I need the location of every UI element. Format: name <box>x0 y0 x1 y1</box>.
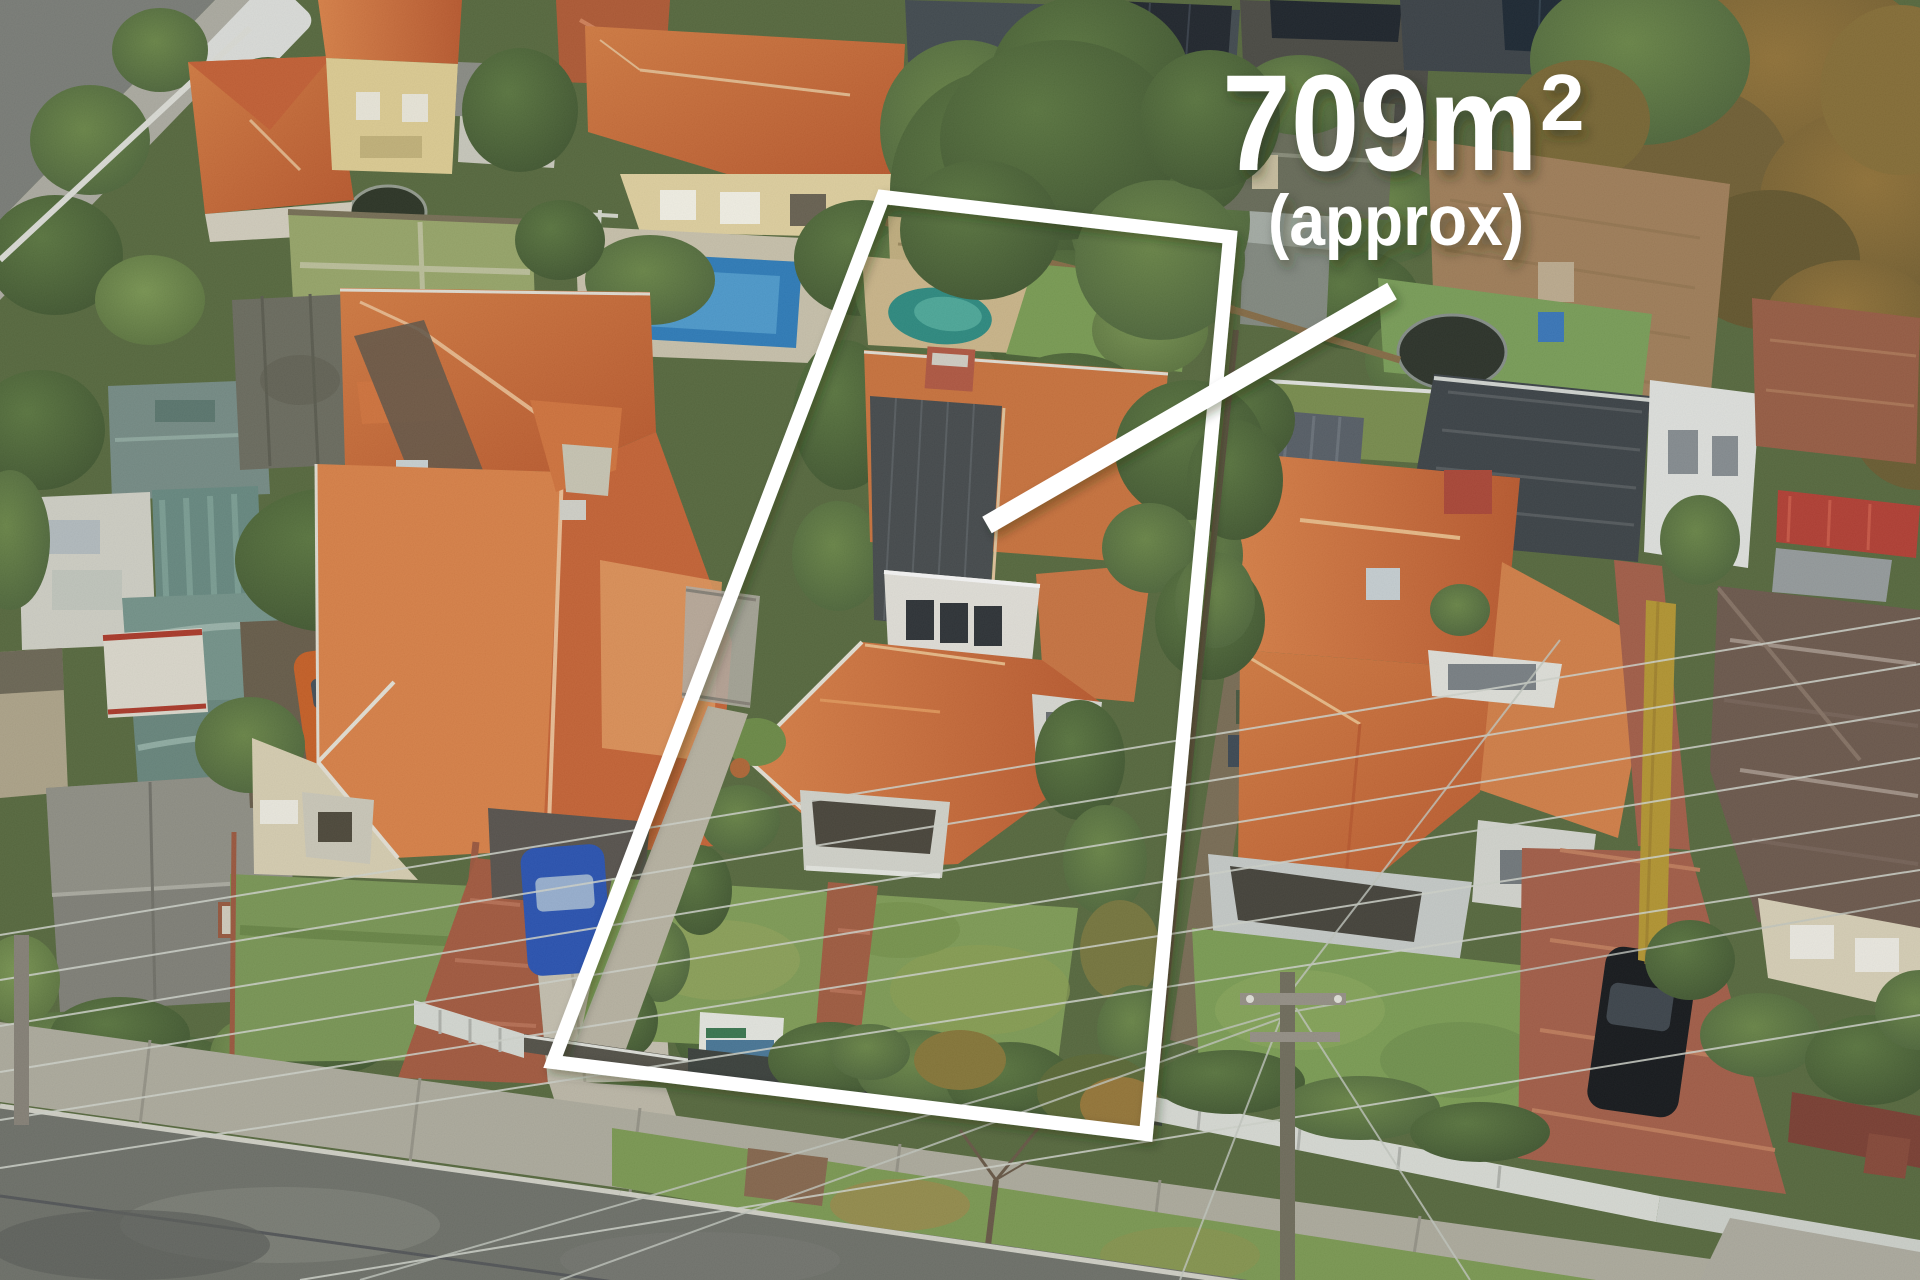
svg-text:(approx): (approx) <box>1268 182 1524 261</box>
svg-text:2: 2 <box>1540 58 1585 147</box>
svg-text:709m: 709m <box>1222 47 1538 200</box>
